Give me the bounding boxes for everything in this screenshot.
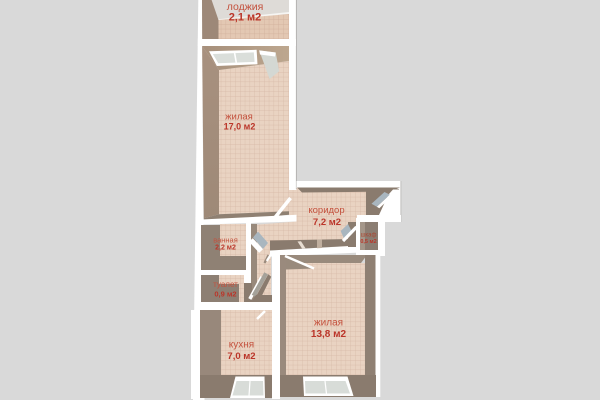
- svg-text:кухня: кухня: [229, 339, 254, 350]
- svg-text:2,1 м2: 2,1 м2: [229, 12, 262, 24]
- svg-text:7,0 м2: 7,0 м2: [227, 351, 255, 362]
- svg-text:7,2 м2: 7,2 м2: [313, 217, 341, 228]
- svg-text:коридор: коридор: [308, 205, 344, 216]
- svg-text:0,5 м2: 0,5 м2: [360, 239, 376, 245]
- svg-text:ванная: ванная: [213, 236, 238, 245]
- svg-text:жилая: жилая: [314, 318, 343, 329]
- svg-text:2,2 м2: 2,2 м2: [215, 245, 236, 252]
- svg-text:13,8 м2: 13,8 м2: [311, 329, 347, 340]
- svg-text:0,9 м2: 0,9 м2: [214, 289, 236, 298]
- svg-text:шкаф: шкаф: [361, 233, 377, 239]
- svg-text:17,0 м2: 17,0 м2: [224, 122, 256, 132]
- svg-text:туалет: туалет: [213, 280, 238, 289]
